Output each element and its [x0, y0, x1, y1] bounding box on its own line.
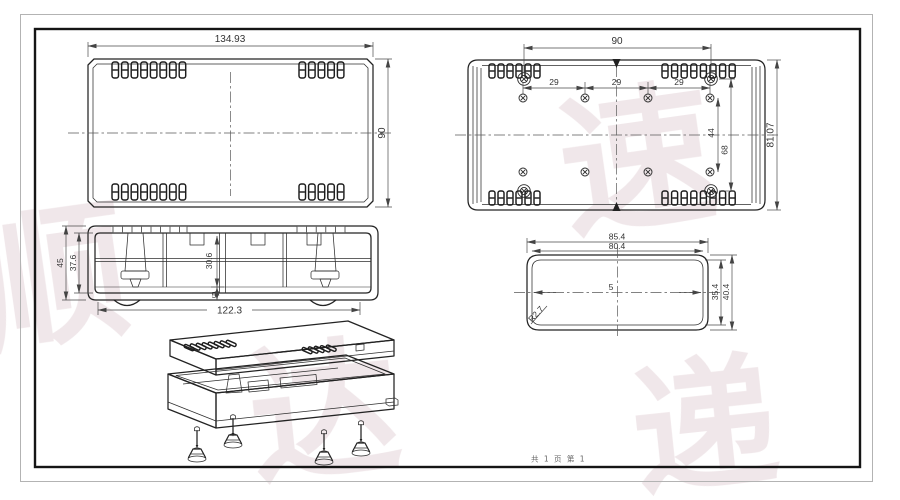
- vent-slots-top-left: [112, 62, 186, 78]
- section-top-vent-gaps: [113, 227, 345, 232]
- dim-text-30-6: 30.6: [204, 252, 214, 269]
- dim-text-68: 68: [720, 145, 730, 155]
- dim-text-35-4: 35.4: [710, 283, 720, 300]
- dim-text-122-3: 122.3: [217, 306, 242, 317]
- vent-slots-top-right: [299, 62, 344, 78]
- dim-corner-radius: R2.7: [526, 304, 547, 324]
- dim-top-width: 134.93: [88, 34, 373, 57]
- dim-text-134-93: 134.93: [215, 34, 246, 45]
- dim-text-81-07: 81.07: [766, 122, 777, 147]
- cad-drawing-canvas: 顺 达 速 递 134.93 90: [0, 0, 900, 500]
- dim-text-37-6: 37.6: [68, 254, 78, 271]
- screw-pin: [194, 427, 199, 449]
- dim-text-29c: 29: [674, 77, 684, 87]
- center-datum-arrow-top: [613, 59, 621, 68]
- watermark-char: 递: [624, 337, 786, 500]
- section-foot-bump-right: [310, 300, 336, 306]
- dim-text-85-4: 85.4: [609, 232, 626, 242]
- dim-text-29a: 29: [549, 77, 559, 87]
- section-screw-towers: [121, 233, 339, 287]
- dim-text-r2-7: R2.7: [526, 304, 546, 324]
- dim-base-height: 81.07: [766, 60, 782, 210]
- dim-section-width: 122.3: [98, 302, 360, 317]
- dim-text-5: 5: [212, 290, 217, 300]
- watermark-char: 速: [548, 62, 727, 263]
- dim-text-80-4: 80.4: [609, 241, 626, 251]
- dim-text-29b: 29: [612, 77, 622, 87]
- page-footer-text: 共 1 页 第 1: [531, 454, 586, 464]
- rubber-foot: [188, 448, 206, 462]
- dim-text-90-side: 90: [377, 127, 388, 139]
- drawing-sheet: 顺 达 速 递 134.93 90: [0, 0, 900, 500]
- dim-section-ledge: 5: [212, 287, 217, 300]
- section-wall-hatch: [88, 226, 378, 300]
- vent-slots-bottom-right: [299, 184, 344, 200]
- dim-text-40-4: 40.4: [721, 283, 731, 300]
- dim-text-5-center: 5: [609, 282, 614, 292]
- section-center-wall: [220, 233, 226, 293]
- watermark: 顺 达 速 递: [0, 62, 786, 500]
- dim-text-45: 45: [55, 258, 65, 268]
- view-top-cover: 134.93 90: [68, 34, 393, 207]
- dim-text-44: 44: [706, 128, 716, 138]
- dim-text-90: 90: [611, 36, 623, 47]
- vent-slots-bottom-left: [112, 184, 186, 200]
